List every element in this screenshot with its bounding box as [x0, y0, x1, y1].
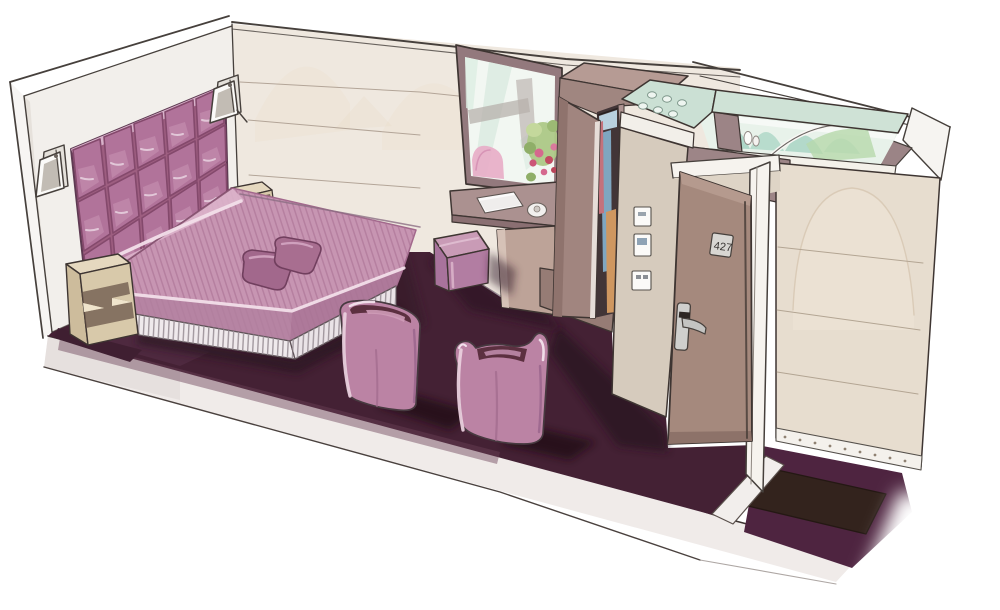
svg-text:427: 427: [713, 240, 733, 254]
